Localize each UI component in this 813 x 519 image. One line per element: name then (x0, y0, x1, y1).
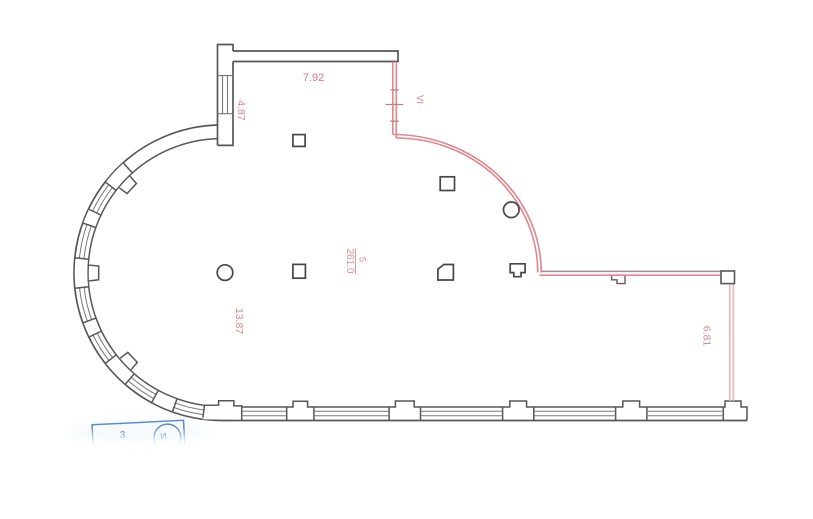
svg-text:4.87: 4.87 (235, 100, 247, 121)
svg-text:5: 5 (357, 257, 368, 262)
svg-text:6.81: 6.81 (701, 326, 713, 347)
svg-text:7.92: 7.92 (303, 72, 324, 84)
svg-text:261.0: 261.0 (344, 248, 355, 273)
svg-text:И: И (160, 431, 167, 441)
svg-text:VI: VI (414, 95, 425, 104)
svg-text:3: 3 (120, 430, 127, 441)
svg-text:13.87: 13.87 (233, 308, 245, 334)
